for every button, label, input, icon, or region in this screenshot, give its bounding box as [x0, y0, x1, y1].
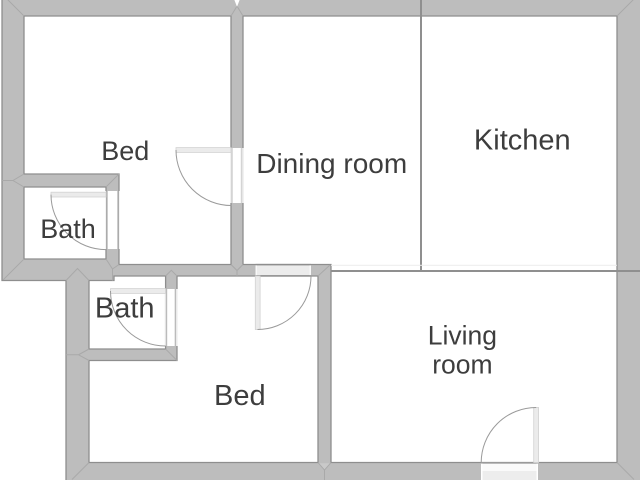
svg-text:room: room — [432, 350, 492, 380]
svg-text:Living: Living — [428, 321, 497, 351]
svg-text:Bath: Bath — [95, 293, 155, 325]
svg-text:Dining room: Dining room — [256, 148, 407, 179]
svg-text:Bed: Bed — [101, 136, 149, 166]
svg-text:Kitchen: Kitchen — [474, 125, 571, 157]
svg-text:Bed: Bed — [214, 380, 266, 412]
svg-text:Bath: Bath — [40, 214, 96, 244]
